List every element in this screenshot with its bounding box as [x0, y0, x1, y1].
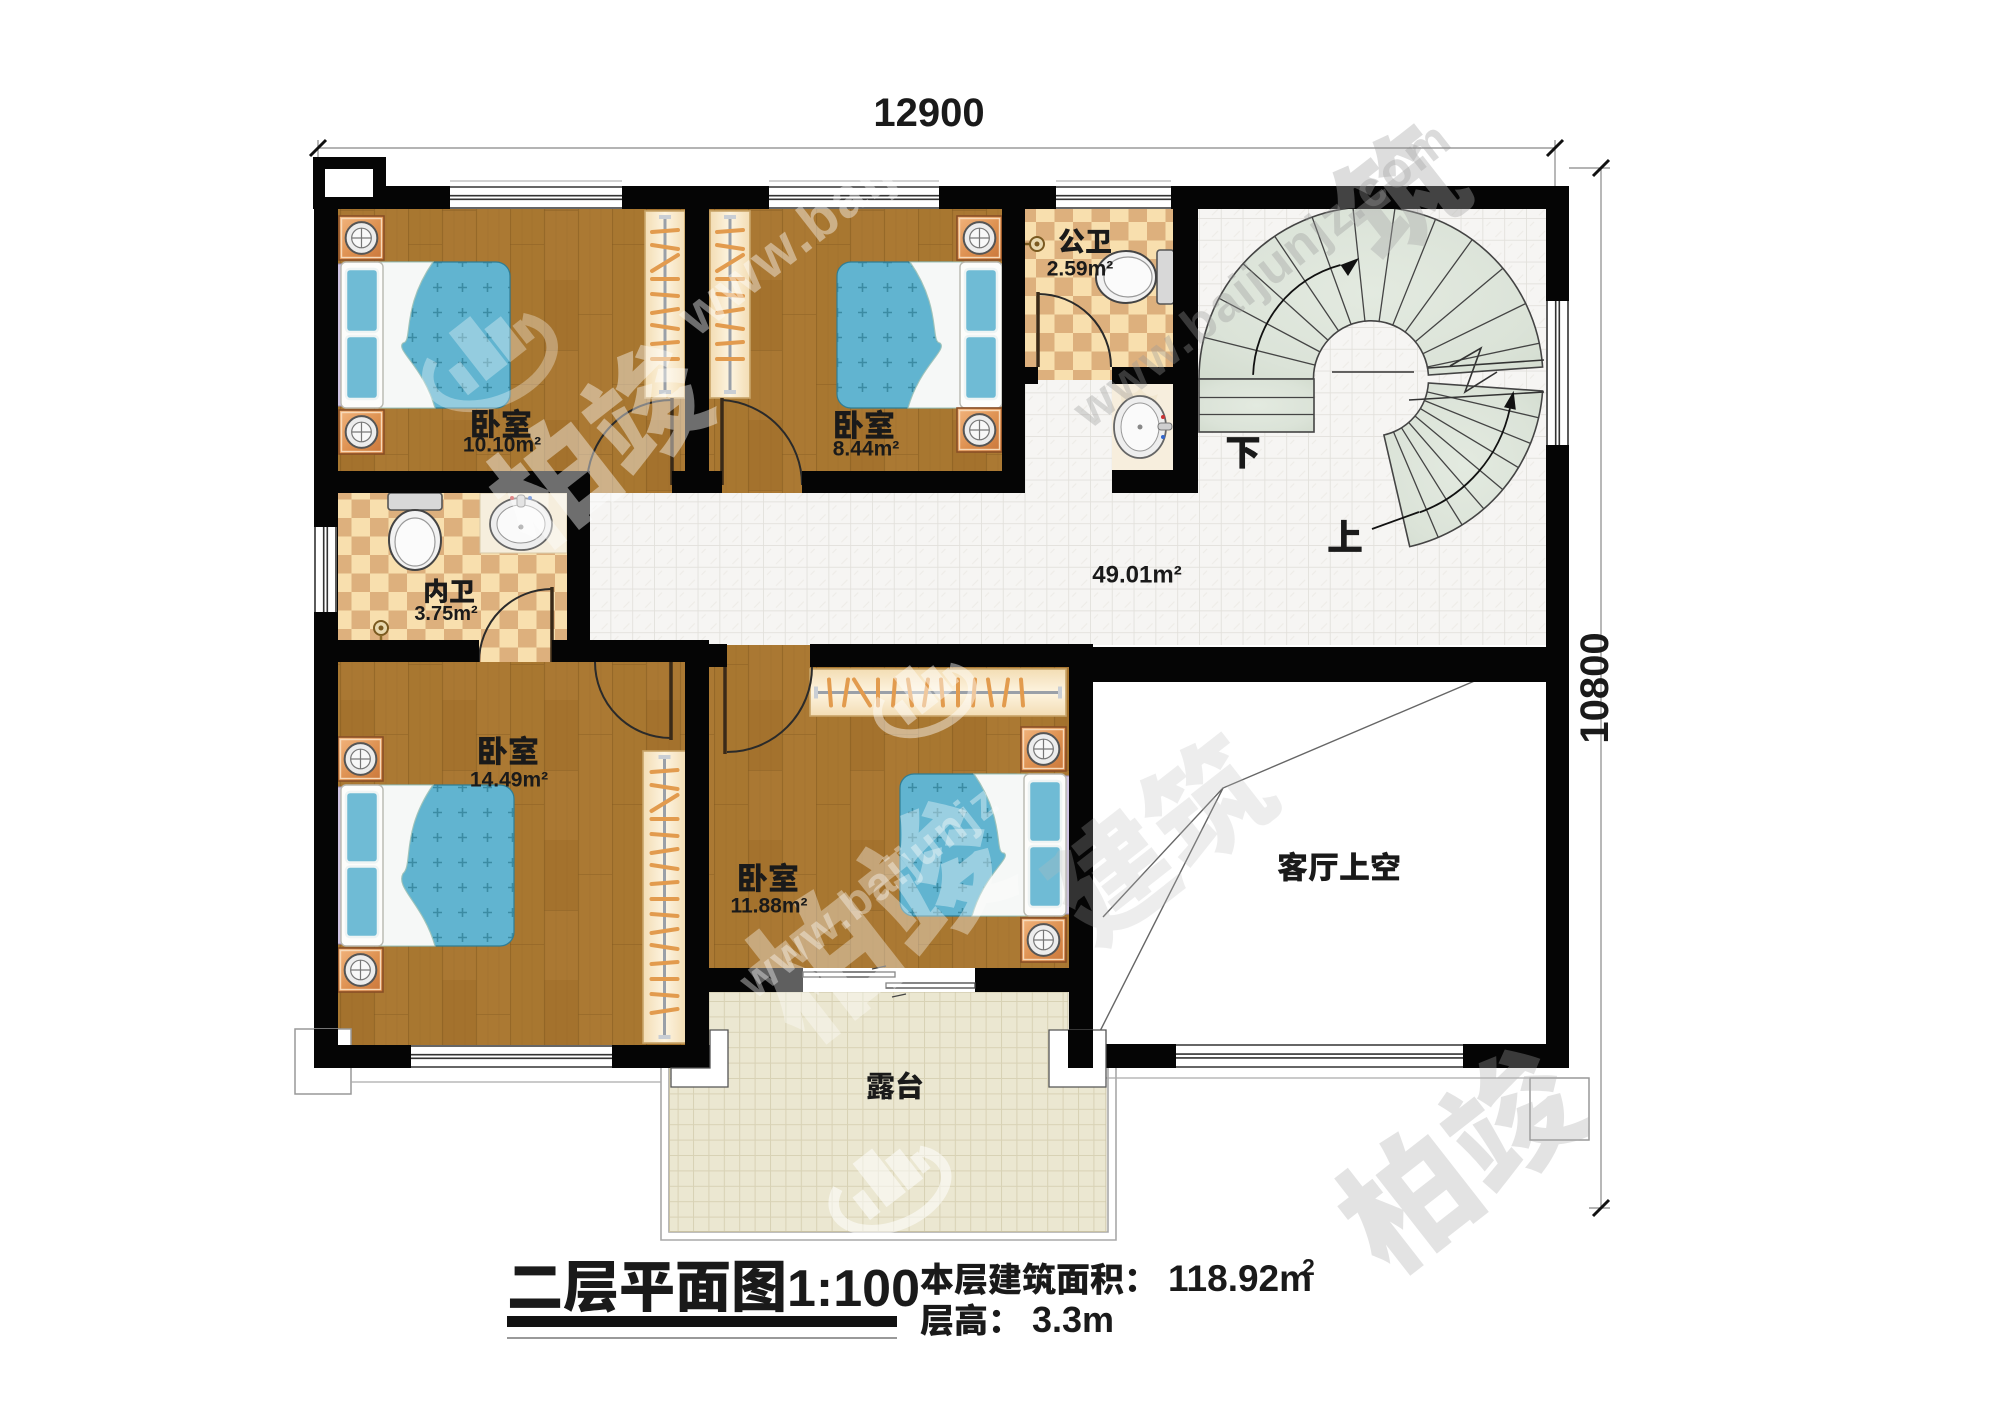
svg-text:118.92m: 118.92m	[1168, 1258, 1312, 1299]
svg-text:3.75m²: 3.75m²	[414, 603, 478, 625]
svg-text:2.59m²: 2.59m²	[1047, 257, 1114, 280]
svg-text:14.49m²: 14.49m²	[470, 768, 548, 791]
svg-text:2: 2	[1302, 1254, 1315, 1280]
svg-text:10.10m²: 10.10m²	[463, 433, 541, 456]
svg-text:49.01m²: 49.01m²	[1092, 561, 1181, 588]
svg-text:3.3m: 3.3m	[1032, 1299, 1114, 1340]
svg-text:1:100: 1:100	[787, 1260, 920, 1318]
svg-text:10800: 10800	[1573, 632, 1617, 743]
svg-text:11.88m²: 11.88m²	[730, 894, 807, 917]
svg-text:8.44m²: 8.44m²	[833, 437, 900, 460]
svg-text:12900: 12900	[873, 91, 984, 135]
